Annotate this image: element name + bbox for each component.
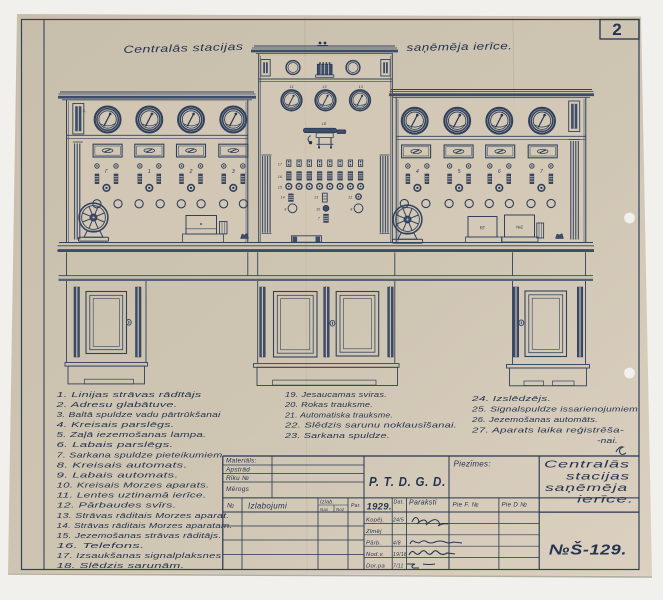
svg-text:18: 18	[322, 122, 327, 126]
svg-text:7: 7	[318, 217, 320, 221]
svg-text:-nai.: -nai.	[597, 436, 618, 445]
svg-text:9. Labais automats.: 9. Labais automats.	[57, 470, 179, 479]
svg-text:13: 13	[314, 196, 318, 200]
svg-text:Nod.v.: Nod.v.	[366, 552, 384, 558]
svg-text:16. Telefons.: 16. Telefons.	[57, 541, 145, 550]
svg-text:Piezīmes:: Piezīmes:	[454, 460, 491, 469]
svg-text:17. Izsaukšanas signalplaksnes: 17. Izsaukšanas signalplaksnes	[57, 551, 222, 560]
svg-text:№Š-129.: №Š-129.	[549, 541, 627, 559]
svg-text:12: 12	[322, 85, 327, 89]
svg-text:1929.: 1929.	[367, 502, 392, 513]
svg-text:10. Kreisais Morzes aparats.: 10. Kreisais Morzes aparats.	[57, 481, 210, 490]
svg-text:3. Baltā spuldze vadu pārtrūkš: 3. Baltā spuldze vadu pārtrūkšanai	[57, 410, 221, 419]
svg-text:14: 14	[281, 196, 285, 200]
svg-text:2: 2	[612, 20, 621, 39]
svg-text:14. Strāvas rāditais Morzes ap: 14. Strāvas rāditais Morzes aparatam.	[57, 521, 233, 530]
svg-text:saņēmēja: saņēmēja	[545, 483, 628, 494]
svg-text:3: 3	[232, 169, 235, 175]
svg-text:24. Izslēdzējs.: 24. Izslēdzējs.	[470, 394, 551, 403]
svg-text:20. Rokas trauksme.: 20. Rokas trauksme.	[284, 400, 373, 409]
svg-text:12. Pārbaudes svīrs.: 12. Pārbaudes svīrs.	[57, 501, 177, 510]
svg-text:25. Signalspuldze issarienojum: 25. Signalspuldze issarienojumiem	[471, 404, 638, 413]
svg-text:Noz: Noz	[336, 507, 345, 512]
svg-text:Rīku №: Rīku №	[226, 475, 249, 482]
svg-text:7: 7	[540, 169, 543, 175]
svg-text:10: 10	[316, 208, 320, 212]
svg-text:17: 17	[278, 163, 282, 167]
svg-text:saņēmēja ierīce.: saņēmēja ierīce.	[406, 41, 512, 54]
svg-text:24/5: 24/5	[392, 518, 404, 524]
svg-text:2. Adresu glabātuve.: 2. Adresu glabātuve.	[55, 400, 178, 409]
svg-text:Kopēj.: Kopēj.	[366, 518, 384, 524]
svg-text:Paraksti: Paraksti	[409, 500, 437, 507]
svg-text:9: 9	[284, 208, 286, 212]
svg-text:7/11: 7/11	[393, 563, 404, 569]
svg-text:4/8: 4/8	[393, 540, 401, 546]
svg-text:8. Kreisais automats.: 8. Kreisais automats.	[57, 460, 188, 469]
svg-text:4: 4	[416, 169, 419, 175]
svg-text:Izlabojumi: Izlabojumi	[248, 502, 287, 511]
svg-text:5: 5	[458, 169, 461, 175]
svg-text:19. Jesaucamas sviras.: 19. Jesaucamas sviras.	[285, 390, 387, 399]
svg-text:11. Lentes uztinamā ierīce.: 11. Lentes uztinamā ierīce.	[57, 491, 207, 500]
svg-text:8: 8	[350, 208, 352, 212]
svg-text:5. Zaļā iezemošanas lampa.: 5. Zaļā iezemošanas lampa.	[57, 430, 207, 439]
svg-text:1. Linijas strāvas rādītājs: 1. Linijas strāvas rādītājs	[57, 390, 202, 399]
svg-text:№: №	[227, 503, 234, 510]
svg-text:Apstrād: Apstrād	[225, 466, 250, 473]
svg-text:Dat.: Dat.	[394, 500, 405, 506]
svg-text:Nas: Nas	[320, 507, 329, 512]
svg-text:6. Labais parslēgs.: 6. Labais parslēgs.	[57, 440, 174, 449]
svg-text:Materiāls:: Materiāls:	[226, 458, 257, 465]
svg-text:21. Automatiska trauksme.: 21. Automatiska trauksme.	[284, 410, 393, 419]
svg-text:19/18: 19/18	[393, 552, 407, 558]
svg-text:4. Kreisais parslēgs.: 4. Kreisais parslēgs.	[57, 420, 175, 429]
svg-text:P. T. D. G. D.: P. T. D. G. D.	[369, 475, 446, 489]
svg-text:Zīmēj: Zīmēj	[365, 529, 382, 535]
svg-text:7. Sarkana spuldze pieteikumie: 7. Sarkana spuldze pieteikumiem	[57, 450, 223, 459]
svg-text:23. Sarkana spuldze.: 23. Sarkana spuldze.	[284, 431, 390, 440]
svg-text:2: 2	[189, 169, 193, 175]
svg-text:15. Jezemošanas strāvas rāditā: 15. Jezemošanas strāvas rāditājs.	[57, 531, 222, 540]
svg-text:15: 15	[278, 185, 282, 189]
svg-text:Pie D №: Pie D №	[502, 502, 528, 509]
svg-text:Pie F. №: Pie F. №	[453, 502, 479, 509]
svg-text:12: 12	[348, 196, 352, 200]
svg-text:4,: 4,	[83, 108, 87, 113]
svg-text:Dor.pa: Dor.pa	[366, 563, 385, 569]
svg-text:6: 6	[498, 169, 501, 175]
svg-text:26. Jezemošanas automāts.: 26. Jezemošanas automāts.	[471, 415, 598, 424]
svg-text:Centralās: Centralās	[544, 460, 630, 471]
svg-text:№2: №2	[516, 225, 523, 230]
svg-text:Mērogs: Mērogs	[226, 486, 250, 493]
svg-text:11: 11	[290, 85, 294, 89]
svg-text:18. Slēdzis sarunām.: 18. Slēdzis sarunām.	[57, 561, 185, 570]
svg-text:22. Slēdzis sarunu noklausīšan: 22. Slēdzis sarunu noklausīšanai.	[284, 421, 457, 430]
svg-text:ierīce.: ierīce.	[577, 495, 634, 506]
svg-text:RT: RT	[480, 226, 486, 231]
svg-text:Izlab.: Izlab.	[320, 500, 334, 506]
svg-text:Pārb.: Pārb.	[366, 540, 381, 546]
svg-text:13: 13	[359, 85, 364, 89]
svg-text:stacijas: stacijas	[566, 472, 630, 483]
svg-text:16: 16	[278, 175, 282, 179]
svg-text:27. Aparats laika reģistrēša-: 27. Aparats laika reģistrēša-	[470, 425, 624, 434]
svg-text:Par.: Par.	[351, 503, 361, 509]
svg-text:13. Strāvas rāditais Morzes ap: 13. Strāvas rāditais Morzes aparat.	[57, 511, 230, 520]
svg-text:1: 1	[148, 169, 151, 175]
